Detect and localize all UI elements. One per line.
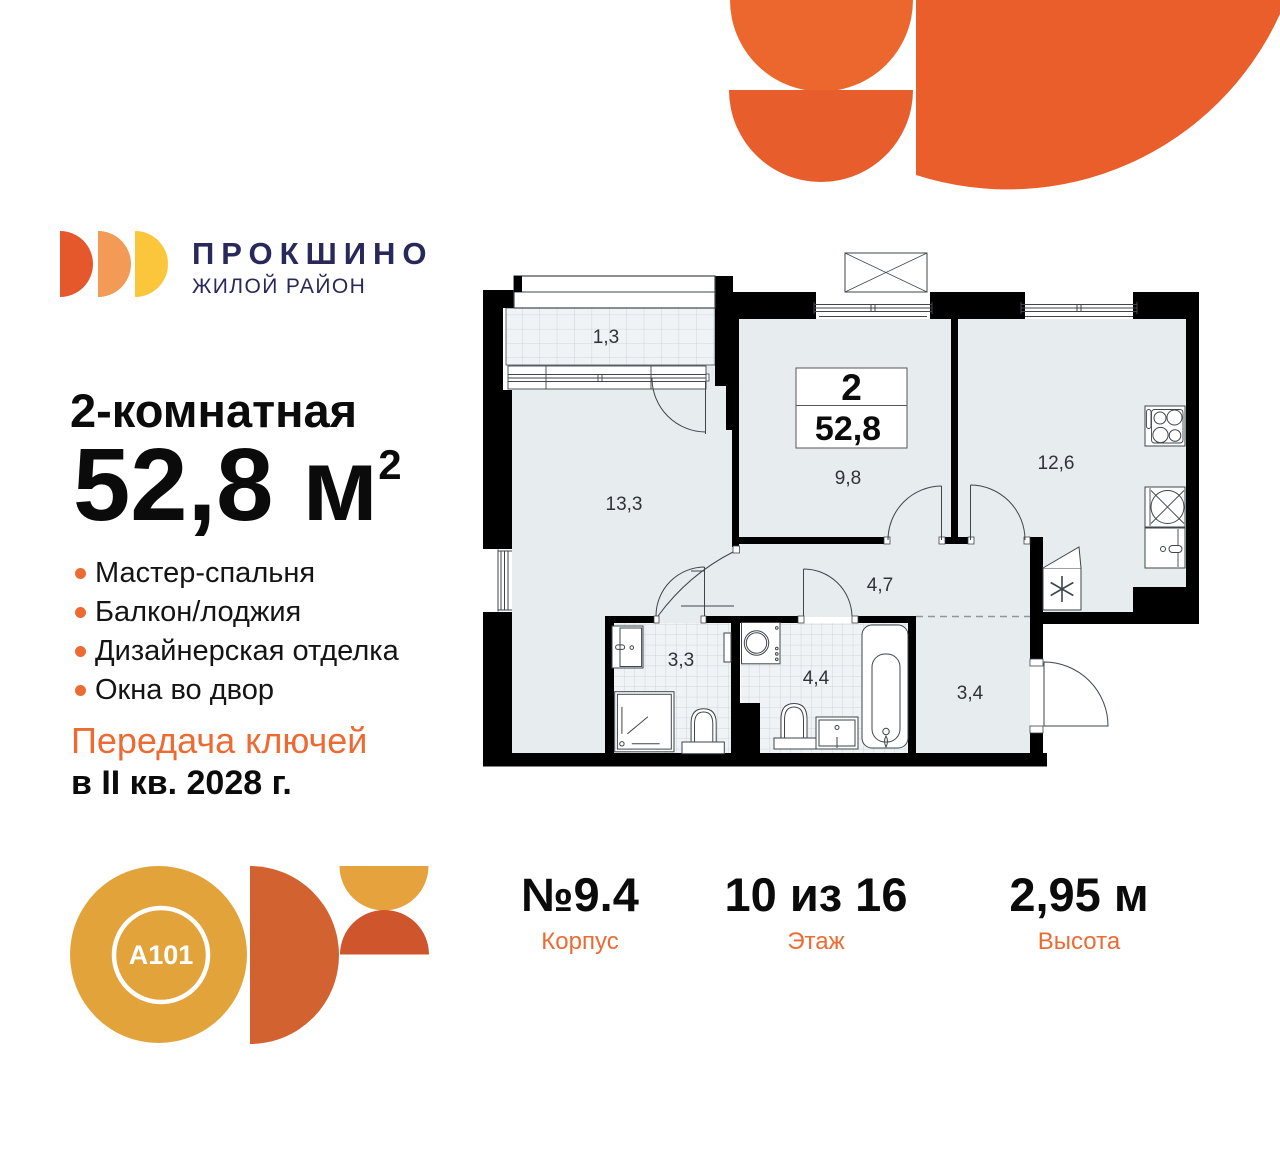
svg-text:12,6: 12,6 bbox=[1038, 453, 1075, 474]
svg-text:3,4: 3,4 bbox=[957, 683, 984, 704]
svg-text:52,8: 52,8 bbox=[815, 410, 881, 448]
svg-text:2: 2 bbox=[841, 367, 862, 408]
svg-text:4,4: 4,4 bbox=[803, 668, 830, 689]
svg-text:3,3: 3,3 bbox=[668, 650, 694, 671]
svg-text:1,3: 1,3 bbox=[593, 327, 619, 348]
svg-text:А101: А101 bbox=[129, 940, 194, 970]
svg-text:9,8: 9,8 bbox=[835, 468, 861, 489]
svg-text:13,3: 13,3 bbox=[606, 494, 643, 515]
svg-text:4,7: 4,7 bbox=[867, 575, 893, 596]
